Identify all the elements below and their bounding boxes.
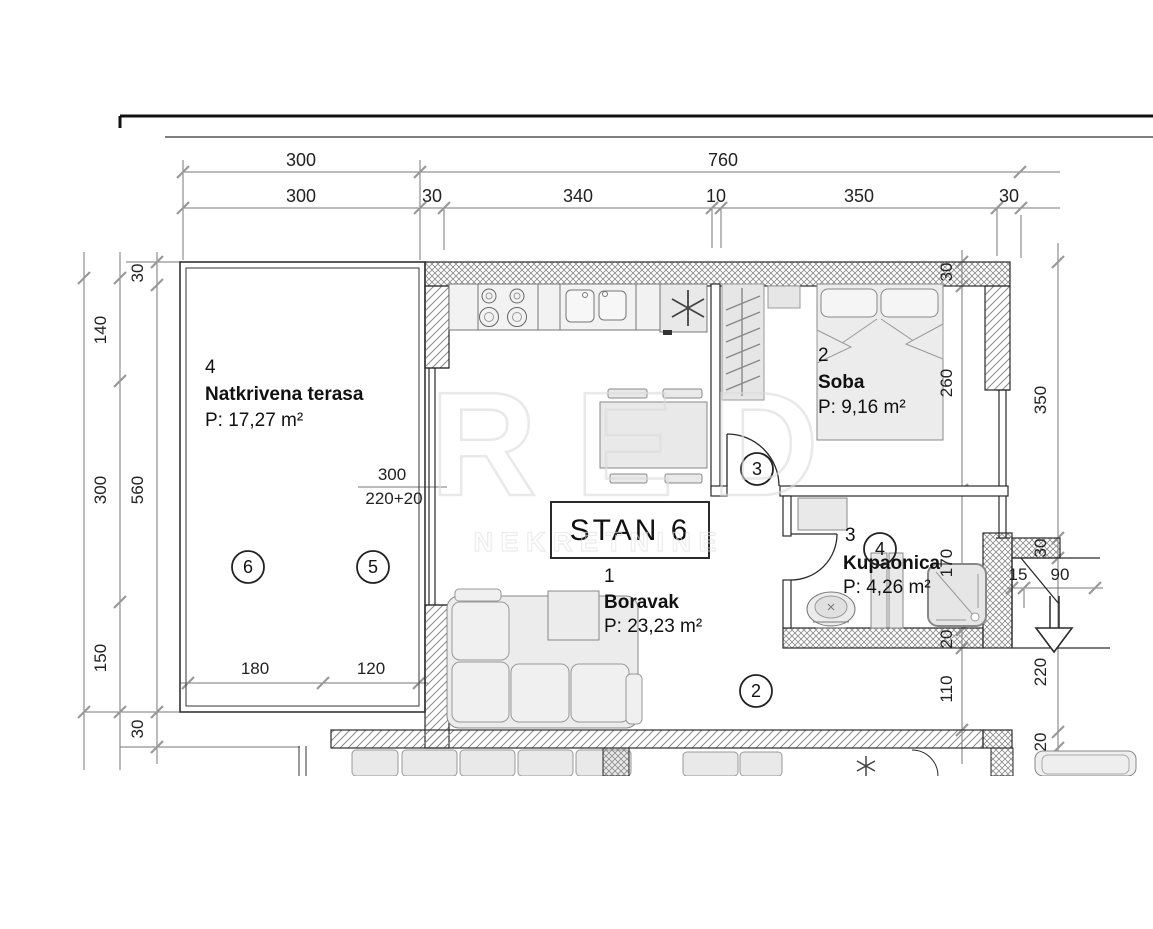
wall-east-bath [983, 533, 1012, 648]
dim-left-30a: 30 [128, 264, 147, 283]
kupaonica-area: P: 4,26 m² [843, 577, 931, 598]
dim-right-20b: 20 [1031, 733, 1050, 752]
marker-6-label: 6 [243, 557, 253, 577]
dim-right-220: 220 [1031, 658, 1050, 686]
wall-west-upper [425, 286, 449, 368]
wall-bath-left-b [783, 580, 791, 628]
dim-left-140: 140 [91, 316, 110, 344]
dim-entry-15: 15 [1009, 565, 1028, 584]
pillow [821, 289, 877, 317]
lower-wall-dotted [991, 748, 1013, 776]
dim-right-260: 260 [937, 369, 956, 397]
floor-plan-page: STAN 6 4 Natkrivena terasa P: 17,27 m² 2… [0, 0, 1153, 929]
boravak-area: P: 23,23 m² [604, 616, 702, 637]
dim-top1-300: 300 [286, 150, 316, 170]
sofa-armrest [626, 674, 642, 724]
dim-opening-height: 220+20 [365, 489, 422, 508]
lower-sofa-seat [402, 750, 457, 776]
dim-top1-760: 760 [708, 150, 738, 170]
wall-east-upper [985, 286, 1010, 390]
dim-right-110: 110 [937, 675, 956, 702]
marker-6: 6 [232, 551, 264, 583]
shelf [768, 286, 800, 308]
wall-bottom-right [983, 730, 1012, 748]
lower-wall-stub [603, 748, 629, 776]
dim-right-30b: 30 [1031, 539, 1050, 558]
sofa-cushion [452, 662, 509, 722]
floor-plan-svg: STAN 6 4 Natkrivena terasa P: 17,27 m² 2… [0, 0, 1153, 929]
lower-sofa-seat [518, 750, 573, 776]
watermark-title: RED [430, 362, 856, 527]
boravak-index: 1 [604, 566, 615, 587]
counter-mark [663, 330, 672, 335]
marker-5: 5 [357, 551, 389, 583]
dim-top2-300: 300 [286, 186, 316, 206]
lower-sofa-seat [460, 750, 515, 776]
terasa-area: P: 17,27 m² [205, 410, 303, 431]
dim-right-170: 170 [937, 549, 956, 577]
sofa-cushion [452, 602, 509, 660]
marker-5-label: 5 [368, 557, 378, 577]
boravak-name: Boravak [604, 592, 679, 613]
wall-top [425, 262, 1010, 286]
kitchen [449, 284, 707, 335]
marker-2-label: 2 [751, 681, 761, 701]
lower-sofa-seat [683, 752, 738, 776]
dim-top2-30: 30 [422, 186, 442, 206]
lower-sofa-seat [352, 750, 398, 776]
sofa-armrest [455, 589, 501, 601]
marker-4-label: 4 [875, 539, 885, 559]
kupaonica-name: Kupaonica [843, 553, 941, 574]
lower-sofa-seat [740, 752, 782, 776]
kupaonica-index: 3 [845, 525, 856, 546]
dim-entry-90: 90 [1051, 565, 1070, 584]
dim-terrace-120: 120 [357, 659, 385, 678]
pillow [881, 289, 938, 317]
dim-top2-350: 350 [844, 186, 874, 206]
watermark-subtitle: N E K R E T N I N E [473, 527, 716, 557]
fridge-cell [660, 284, 707, 332]
dim-left-560: 560 [128, 476, 147, 504]
terasa-name: Natkrivena terasa [205, 384, 364, 405]
wall-west-lower [425, 605, 449, 748]
dim-terrace-180: 180 [241, 659, 269, 678]
coffee-table [548, 591, 599, 640]
dim-opening-width: 300 [378, 465, 406, 484]
dim-left-30b: 30 [128, 720, 147, 739]
dim-left-300: 300 [91, 476, 110, 504]
terasa-index: 4 [205, 357, 216, 378]
sofa-cushion [511, 664, 569, 722]
dim-top2-10: 10 [706, 186, 726, 206]
dim-right-30: 30 [937, 263, 956, 282]
dim-right-350: 350 [1031, 386, 1050, 414]
dim-right-20a: 20 [937, 630, 956, 649]
sofa-cushion [571, 664, 629, 722]
dim-top2-340: 340 [563, 186, 593, 206]
wall-bottom [331, 730, 983, 748]
dim-top2-30b: 30 [999, 186, 1019, 206]
dim-left-150: 150 [91, 644, 110, 672]
marker-2: 2 [740, 675, 772, 707]
